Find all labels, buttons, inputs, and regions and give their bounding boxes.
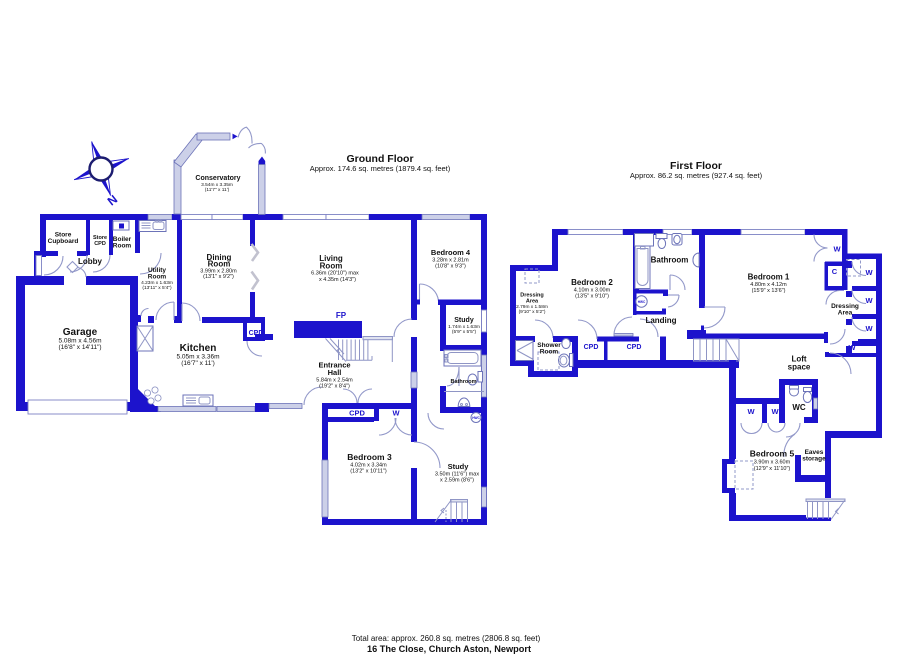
svg-text:(15'9" x 13'6"): (15'9" x 13'6") xyxy=(752,288,786,294)
svg-text:Room: Room xyxy=(320,262,343,271)
svg-text:Approx. 86.2 sq. metres (927.4: Approx. 86.2 sq. metres (927.4 sq. feet) xyxy=(630,171,763,180)
svg-text:FP: FP xyxy=(336,311,347,320)
svg-text:CPD: CPD xyxy=(584,344,599,351)
svg-text:WC: WC xyxy=(792,403,806,412)
svg-text:x 2.59m (8'6"): x 2.59m (8'6") xyxy=(440,478,474,484)
svg-text:Room: Room xyxy=(540,349,559,356)
svg-text:Landing: Landing xyxy=(645,316,676,325)
svg-text:(13'2" x 10'11"): (13'2" x 10'11") xyxy=(350,469,387,475)
svg-text:Bedroom 1: Bedroom 1 xyxy=(748,273,790,282)
svg-text:CPD: CPD xyxy=(94,241,106,247)
svg-text:x 4.35m (14'3"): x 4.35m (14'3") xyxy=(319,277,356,283)
svg-text:W: W xyxy=(833,245,841,254)
svg-text:W: W xyxy=(771,407,779,416)
svg-text:16 The Close, Church Aston, Ne: 16 The Close, Church Aston, Newport xyxy=(367,644,531,654)
svg-text:Garage: Garage xyxy=(63,327,98,338)
svg-text:Bedroom 4: Bedroom 4 xyxy=(431,248,471,257)
svg-text:(13'11" x 5'4"): (13'11" x 5'4") xyxy=(142,285,172,291)
svg-text:storage: storage xyxy=(802,456,826,463)
svg-text:Lobby: Lobby xyxy=(78,257,103,266)
svg-text:(13'1" x 9'2"): (13'1" x 9'2") xyxy=(203,274,234,280)
svg-text:Approx. 174.6 sq. metres (1879: Approx. 174.6 sq. metres (1879.4 sq. fee… xyxy=(310,164,451,173)
svg-text:Bedroom 2: Bedroom 2 xyxy=(571,278,613,287)
svg-text:Bedroom 5: Bedroom 5 xyxy=(750,449,795,459)
svg-text:HWC: HWC xyxy=(472,416,480,420)
svg-text:Cupboard: Cupboard xyxy=(48,238,79,245)
svg-text:CPD: CPD xyxy=(249,330,264,337)
svg-text:W: W xyxy=(865,296,873,305)
svg-text:HWC: HWC xyxy=(638,300,646,304)
svg-text:W: W xyxy=(865,324,873,333)
svg-text:(16'7" x 11'): (16'7" x 11') xyxy=(181,360,215,367)
svg-text:Bathroom: Bathroom xyxy=(651,256,689,265)
svg-text:Area: Area xyxy=(838,310,853,317)
svg-text:C: C xyxy=(832,267,838,276)
svg-text:6.36m (20'10") max: 6.36m (20'10") max xyxy=(311,271,359,277)
svg-text:Study: Study xyxy=(448,462,470,471)
svg-text:(12'9" x 11'10"): (12'9" x 11'10") xyxy=(754,466,791,472)
svg-text:Total area: approx. 260.8 sq.: Total area: approx. 260.8 sq. metres (28… xyxy=(352,634,541,643)
svg-text:W: W xyxy=(865,268,873,277)
svg-text:Room: Room xyxy=(208,260,231,269)
svg-text:(16'8" x 14'11"): (16'8" x 14'11") xyxy=(58,344,101,351)
svg-text:(9'10" x 5'2"): (9'10" x 5'2") xyxy=(519,309,546,315)
svg-text:CPD: CPD xyxy=(627,344,642,351)
svg-text:W: W xyxy=(747,407,755,416)
svg-text:Study: Study xyxy=(454,317,474,324)
svg-text:Bathroom: Bathroom xyxy=(451,379,477,385)
svg-text:Area: Area xyxy=(526,299,539,305)
svg-text:W: W xyxy=(848,343,856,352)
svg-text:(10'8" x 9'3"): (10'8" x 9'3") xyxy=(435,264,466,270)
svg-text:CPD: CPD xyxy=(349,409,365,418)
svg-text:3.90m x 3.60m: 3.90m x 3.60m xyxy=(754,460,791,466)
svg-text:Hall: Hall xyxy=(328,368,342,377)
svg-text:Conservatory: Conservatory xyxy=(195,175,240,182)
svg-text:(13'5" x 9'10"): (13'5" x 9'10") xyxy=(575,294,609,300)
svg-text:Bedroom 3: Bedroom 3 xyxy=(347,452,392,462)
svg-text:Room: Room xyxy=(113,243,132,250)
svg-text:space: space xyxy=(788,363,811,372)
svg-text:Room: Room xyxy=(148,274,167,281)
svg-text:(5'9" x 5'5"): (5'9" x 5'5") xyxy=(452,329,477,335)
svg-text:(19'2" x 8'4"): (19'2" x 8'4") xyxy=(319,384,350,390)
svg-text:(11'7" x 11'): (11'7" x 11') xyxy=(205,187,230,193)
svg-text:W: W xyxy=(392,409,400,418)
svg-text:Kitchen: Kitchen xyxy=(180,343,217,354)
